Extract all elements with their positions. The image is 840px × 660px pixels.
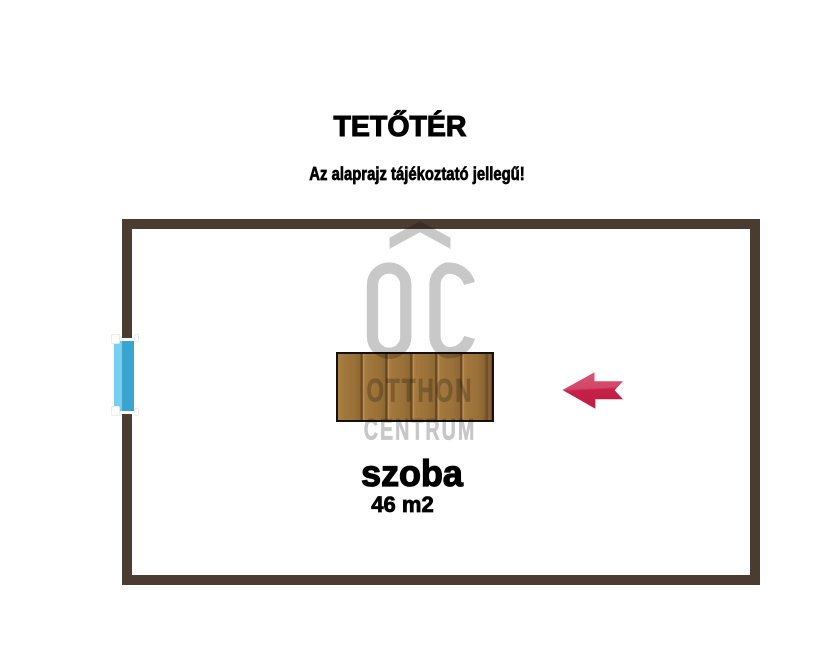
svg-text:CENTRUM: CENTRUM (364, 413, 477, 445)
svg-text:OTTHON: OTTHON (367, 372, 474, 408)
